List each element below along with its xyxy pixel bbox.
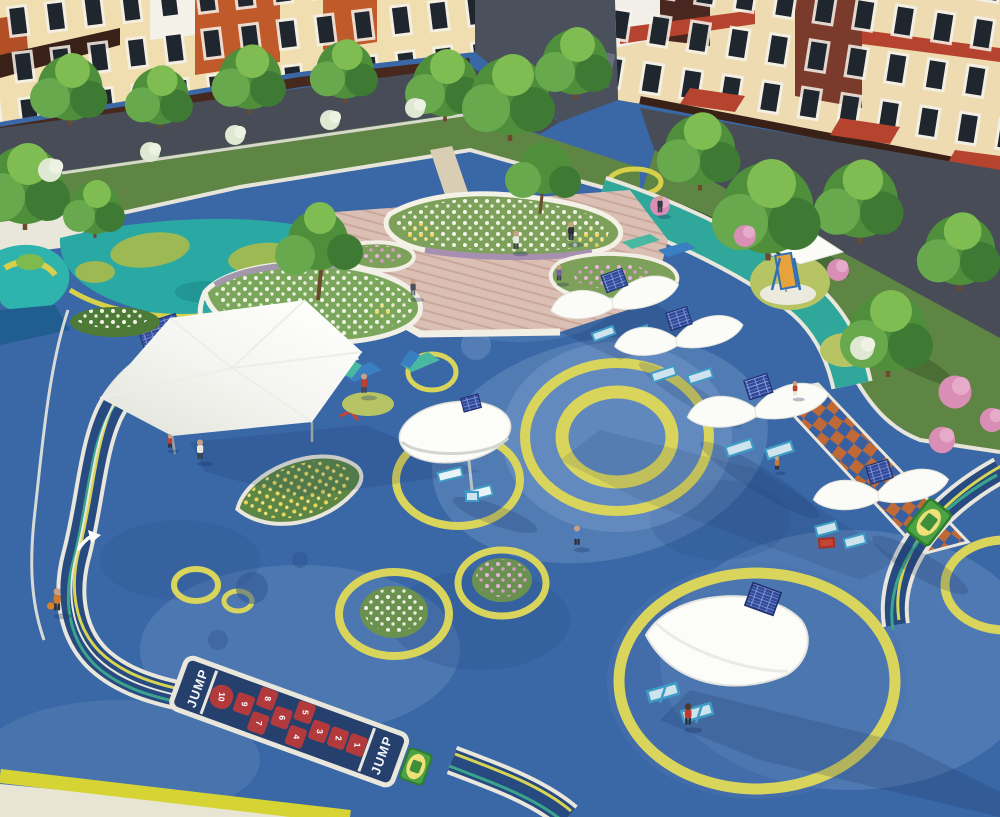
courtyard-playground-render: JUMP JUMP 10 9 8 7 6 5 4 3 2 1	[0, 0, 1000, 817]
scene-canvas: JUMP JUMP 10 9 8 7 6 5 4 3 2 1	[0, 0, 1000, 817]
hopscotch-number: 10	[216, 692, 227, 703]
round-flower-mound-pink	[472, 558, 532, 602]
round-flower-mound-white	[360, 586, 428, 638]
basketball-icon	[47, 602, 54, 609]
